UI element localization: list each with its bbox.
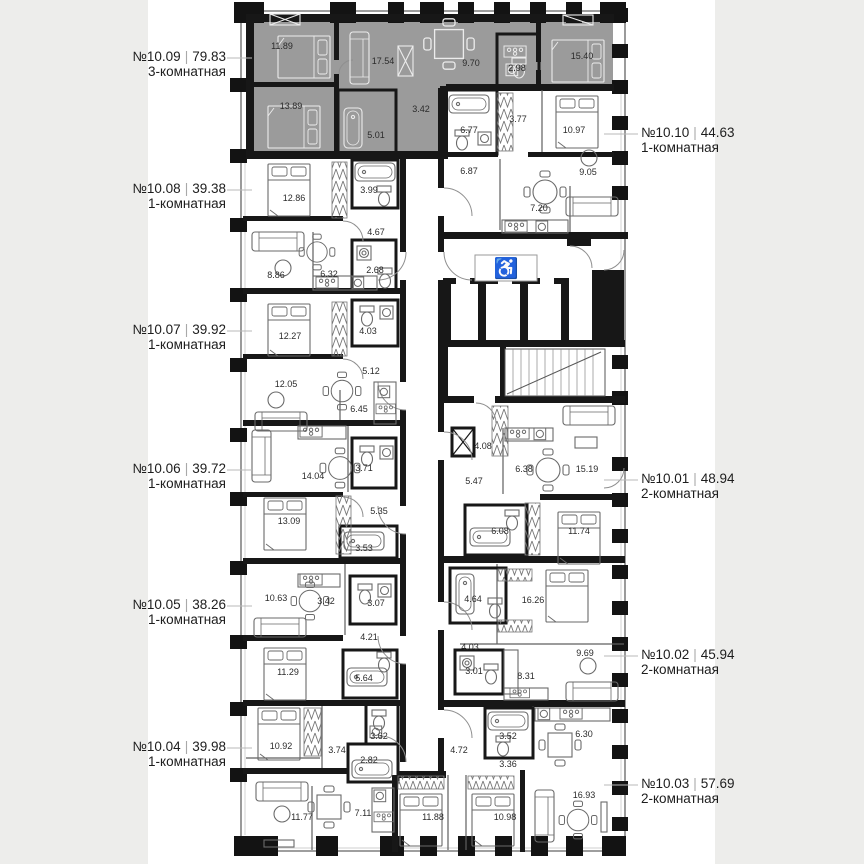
apartment-label-10.06: №10.06|39.721-комнатная [0,461,226,491]
apartment-type: 3-комнатная [0,64,226,79]
apartment-type: 1-комнатная [0,476,226,491]
apartment-number: №10.08 [132,181,180,196]
apartment-number: №10.06 [132,461,180,476]
apartment-number: №10.07 [132,322,180,337]
apartment-type: 2-комнатная [641,791,861,806]
apartment-region-10-08[interactable] [246,160,404,290]
label-separator: | [185,49,189,64]
apartment-area: 38.26 [192,597,226,612]
accessibility-sign: ♿ [475,255,537,281]
apartment-label-10.01: №10.01|48.942-комнатная [641,471,861,501]
apartment-area: 57.69 [701,776,735,791]
apartment-area: 39.38 [192,181,226,196]
label-separator: | [693,471,697,486]
apartment-number: №10.05 [132,597,180,612]
apartment-area: 39.72 [192,461,226,476]
apartment-area: 79.83 [192,49,226,64]
apartment-type: 1-комнатная [0,196,226,211]
label-separator: | [185,461,189,476]
apartment-number: №10.01 [641,471,689,486]
apartment-area: 48.94 [701,471,735,486]
apartment-region-10-03[interactable] [398,708,624,853]
apartment-type: 2-комнатная [641,486,861,501]
stairs [505,349,605,396]
label-separator: | [693,647,697,662]
label-separator: | [185,739,189,754]
apartment-area: 45.94 [701,647,735,662]
apartment-number: №10.02 [641,647,689,662]
apartment-region-10-10[interactable] [444,92,624,234]
floor-plan-page: { "page": { "background": "#ededeb", "ca… [0,0,864,864]
apartment-number: №10.03 [641,776,689,791]
apartment-region-10-02[interactable] [444,565,624,700]
apartment-number: №10.10 [641,125,689,140]
apartment-region-10-01[interactable] [444,404,624,558]
apartment-type: 1-комнатная [0,754,226,769]
apartment-type: 1-комнатная [641,140,861,155]
apartment-area: 39.92 [192,322,226,337]
apartment-type: 1-комнатная [0,337,226,352]
wheelchair-icon: ♿ [494,256,519,280]
apartment-region-10-06[interactable] [246,428,404,560]
apartment-label-10.07: №10.07|39.921-комнатная [0,322,226,352]
apartment-number: №10.09 [132,49,180,64]
label-separator: | [693,776,697,791]
apartment-region-10-07[interactable] [246,296,404,422]
apartment-type: 2-комнатная [641,662,861,677]
apartment-label-10.03: №10.03|57.692-комнатная [641,776,861,806]
apartment-type: 1-комнатная [0,612,226,627]
apartment-label-10.10: №10.10|44.631-комнатная [641,125,861,155]
label-separator: | [185,322,189,337]
apartment-label-10.08: №10.08|39.381-комнатная [0,181,226,211]
label-separator: | [185,597,189,612]
apartment-label-10.09: №10.09|79.833-комнатная [0,49,226,79]
apartment-region-10-05[interactable] [246,566,404,702]
apartment-label-10.05: №10.05|38.261-комнатная [0,597,226,627]
label-separator: | [693,125,697,140]
apartment-label-10.02: №10.02|45.942-комнатная [641,647,861,677]
apartment-area: 39.98 [192,739,226,754]
apartment-area: 44.63 [701,125,735,140]
apartment-region-10-04[interactable] [246,708,404,853]
label-separator: | [185,181,189,196]
apartment-label-10.04: №10.04|39.981-комнатная [0,739,226,769]
apartment-number: №10.04 [132,739,180,754]
